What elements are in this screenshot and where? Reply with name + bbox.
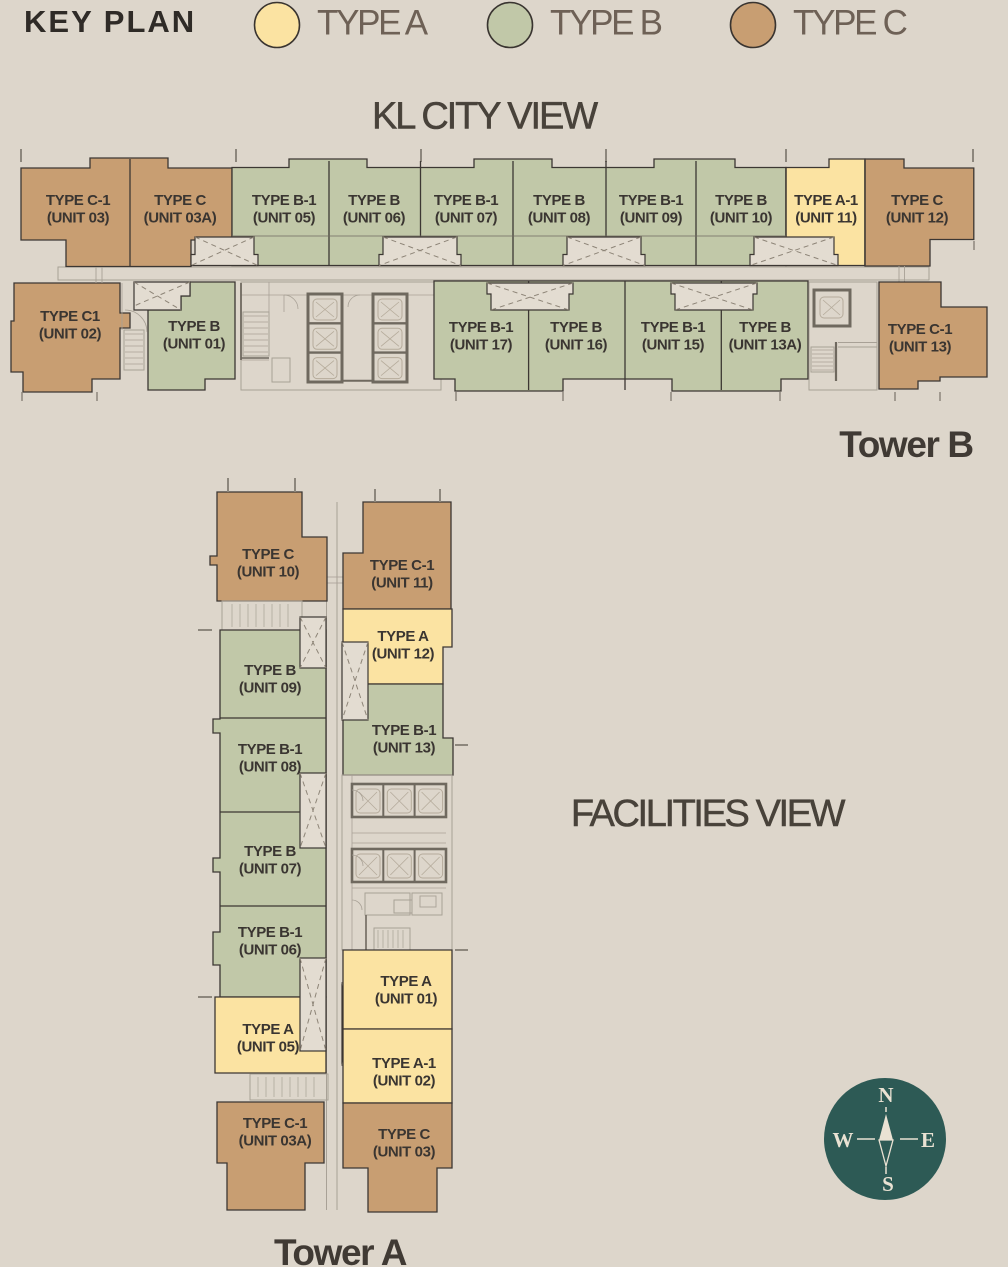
svg-text:(UNIT 06): (UNIT 06) xyxy=(239,942,302,959)
svg-text:(UNIT 15): (UNIT 15) xyxy=(642,337,705,354)
svg-text:(UNIT 07): (UNIT 07) xyxy=(239,861,302,878)
svg-text:(UNIT 09): (UNIT 09) xyxy=(620,210,683,227)
svg-text:TYPE A: TYPE A xyxy=(377,628,429,645)
svg-text:TYPE A: TYPE A xyxy=(380,973,432,990)
svg-text:Tower B: Tower B xyxy=(839,424,973,465)
svg-text:(UNIT 08): (UNIT 08) xyxy=(528,210,591,227)
svg-text:TYPE B: TYPE B xyxy=(715,192,767,209)
svg-text:N: N xyxy=(878,1083,893,1107)
svg-text:TYPE C: TYPE C xyxy=(242,546,294,563)
svg-text:KEY PLAN: KEY PLAN xyxy=(24,4,196,39)
svg-text:(UNIT 13): (UNIT 13) xyxy=(373,740,436,757)
svg-text:(UNIT 12): (UNIT 12) xyxy=(886,210,949,227)
svg-text:(UNIT 08): (UNIT 08) xyxy=(239,759,302,776)
svg-text:TYPE B: TYPE B xyxy=(533,192,585,209)
svg-text:TYPE B: TYPE B xyxy=(348,192,400,209)
svg-text:TYPE B-1: TYPE B-1 xyxy=(449,319,513,336)
svg-text:TYPE C1: TYPE C1 xyxy=(40,308,100,325)
svg-text:TYPE A: TYPE A xyxy=(242,1021,294,1038)
svg-text:TYPE B-1: TYPE B-1 xyxy=(619,192,683,209)
svg-text:TYPE C-1: TYPE C-1 xyxy=(46,192,110,209)
svg-text:W: W xyxy=(833,1128,854,1152)
svg-text:(UNIT 05): (UNIT 05) xyxy=(253,210,316,227)
svg-text:(UNIT 06): (UNIT 06) xyxy=(343,210,406,227)
svg-text:(UNIT 10): (UNIT 10) xyxy=(237,564,300,581)
svg-text:(UNIT 02): (UNIT 02) xyxy=(373,1073,436,1090)
svg-text:(UNIT 17): (UNIT 17) xyxy=(450,337,513,354)
svg-text:TYPE C: TYPE C xyxy=(378,1126,430,1143)
svg-text:TYPE B-1: TYPE B-1 xyxy=(434,192,498,209)
svg-text:TYPE A-1: TYPE A-1 xyxy=(794,192,858,209)
svg-text:(UNIT 03): (UNIT 03) xyxy=(47,210,110,227)
svg-text:TYPE B-1: TYPE B-1 xyxy=(372,722,436,739)
svg-text:(UNIT 05): (UNIT 05) xyxy=(237,1039,300,1056)
svg-text:E: E xyxy=(921,1128,935,1152)
svg-text:TYPE C: TYPE C xyxy=(154,192,206,209)
svg-text:S: S xyxy=(882,1172,894,1196)
svg-text:TYPE C-1: TYPE C-1 xyxy=(243,1115,307,1132)
svg-text:TYPE C-1: TYPE C-1 xyxy=(888,321,952,338)
svg-text:TYPE C-1: TYPE C-1 xyxy=(370,557,434,574)
svg-text:(UNIT 03): (UNIT 03) xyxy=(373,1144,436,1161)
svg-text:(UNIT 03A): (UNIT 03A) xyxy=(144,210,217,227)
svg-text:(UNIT 07): (UNIT 07) xyxy=(435,210,498,227)
svg-text:(UNIT 09): (UNIT 09) xyxy=(239,680,302,697)
svg-text:FACILITIES VIEW: FACILITIES VIEW xyxy=(571,793,846,835)
svg-text:TYPE B: TYPE B xyxy=(244,662,296,679)
svg-text:TYPE A: TYPE A xyxy=(317,4,429,43)
svg-text:TYPE C: TYPE C xyxy=(793,4,907,43)
svg-text:TYPE B: TYPE B xyxy=(739,319,791,336)
svg-text:(UNIT 11): (UNIT 11) xyxy=(371,575,433,592)
svg-text:KL CITY VIEW: KL CITY VIEW xyxy=(372,96,598,138)
svg-text:(UNIT 16): (UNIT 16) xyxy=(545,337,608,354)
svg-text:(UNIT 13A): (UNIT 13A) xyxy=(729,337,802,354)
svg-text:Tower A: Tower A xyxy=(274,1232,407,1267)
svg-text:TYPE B: TYPE B xyxy=(244,843,296,860)
svg-text:(UNIT 11): (UNIT 11) xyxy=(795,210,857,227)
svg-text:TYPE A-1: TYPE A-1 xyxy=(372,1055,436,1072)
svg-text:(UNIT 02): (UNIT 02) xyxy=(39,326,102,343)
svg-text:TYPE B-1: TYPE B-1 xyxy=(252,192,316,209)
svg-text:TYPE B: TYPE B xyxy=(550,4,662,43)
svg-text:TYPE B: TYPE B xyxy=(550,319,602,336)
svg-text:(UNIT 12): (UNIT 12) xyxy=(372,646,435,663)
svg-text:(UNIT 01): (UNIT 01) xyxy=(163,336,226,353)
svg-text:TYPE B-1: TYPE B-1 xyxy=(641,319,705,336)
svg-text:TYPE B-1: TYPE B-1 xyxy=(238,924,302,941)
svg-text:TYPE B: TYPE B xyxy=(168,318,220,335)
svg-text:(UNIT 13): (UNIT 13) xyxy=(889,339,952,356)
svg-text:(UNIT 10): (UNIT 10) xyxy=(710,210,773,227)
svg-text:TYPE C: TYPE C xyxy=(891,192,943,209)
svg-text:(UNIT 01): (UNIT 01) xyxy=(375,991,438,1008)
svg-text:(UNIT 03A): (UNIT 03A) xyxy=(239,1133,312,1150)
svg-text:TYPE B-1: TYPE B-1 xyxy=(238,741,302,758)
